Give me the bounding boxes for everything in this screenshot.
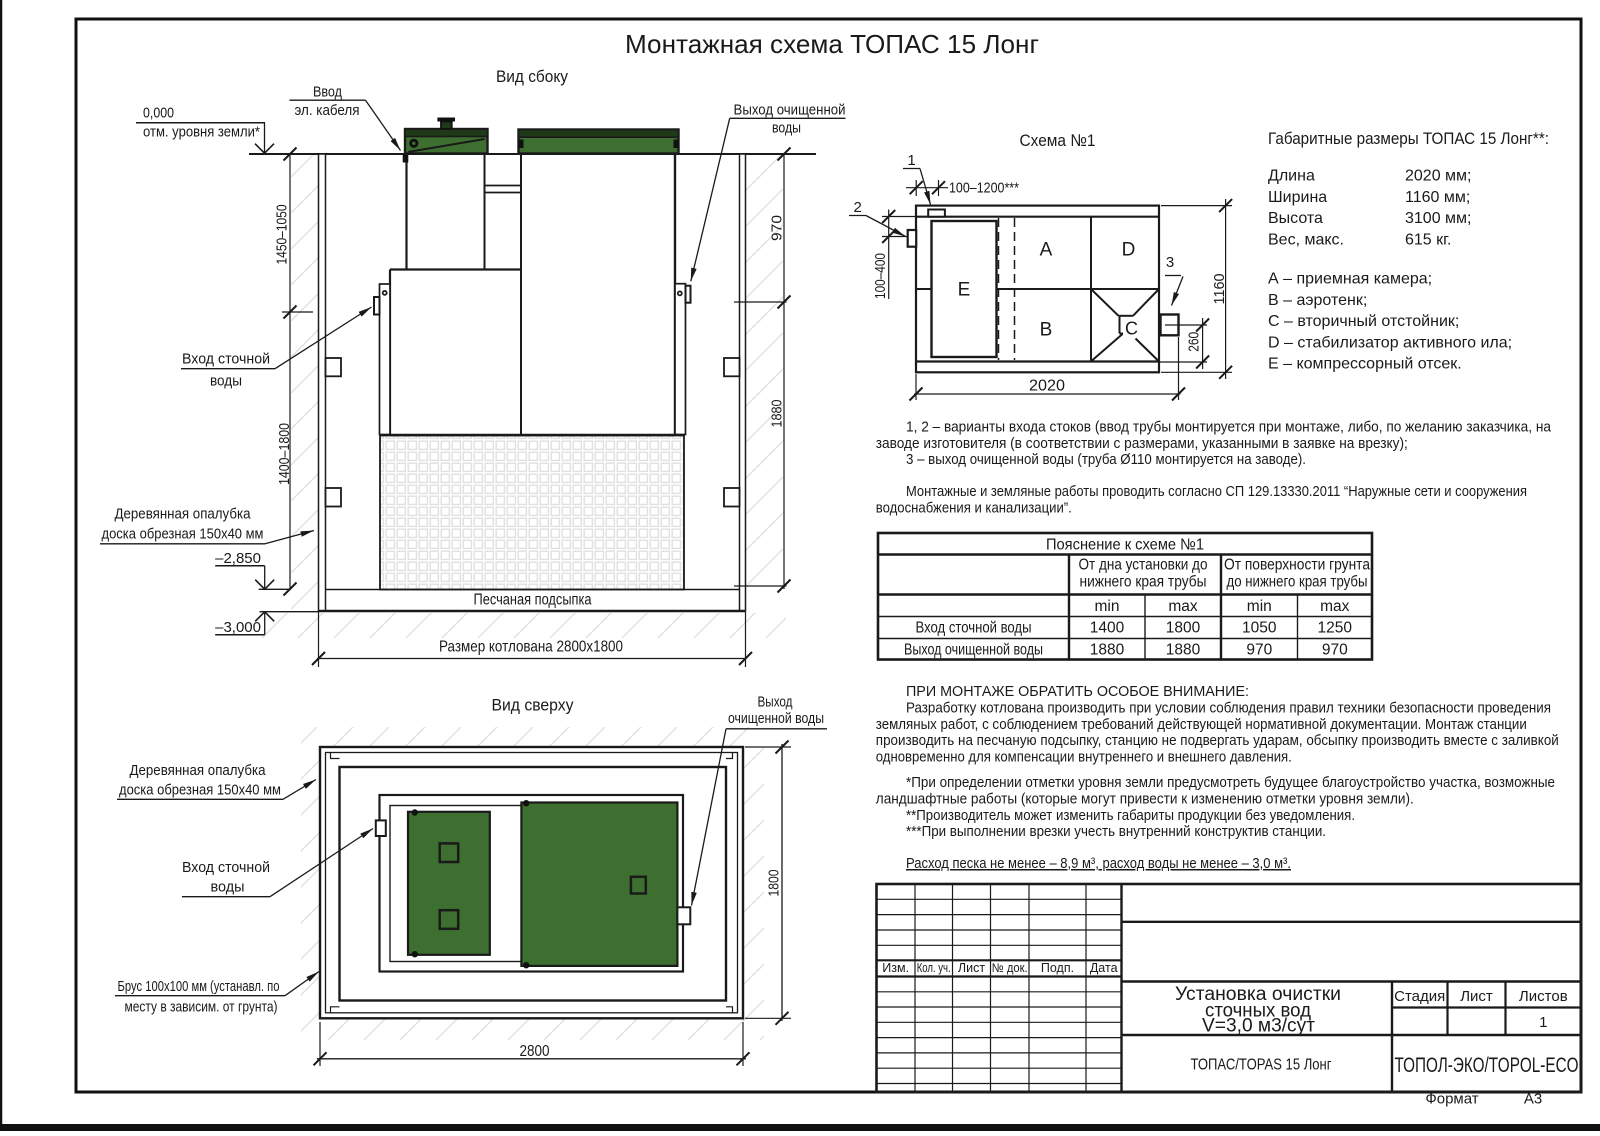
svg-text:970: 970 — [769, 215, 786, 241]
svg-text:ТОПОЛ-ЭКО/TOPOL-ECO: ТОПОЛ-ЭКО/TOPOL-ECO — [1395, 1054, 1579, 1077]
svg-text:A: A — [1040, 240, 1053, 261]
svg-text:одновременно для компенсации в: одновременно для компенсации внутреннего… — [876, 749, 1292, 766]
svg-text:–3,000: –3,000 — [215, 619, 261, 636]
svg-text:доска обрезная 150х40 мм: доска обрезная 150х40 мм — [102, 526, 264, 543]
svg-text:D: D — [1122, 240, 1136, 261]
svg-text:Формат: Формат — [1425, 1091, 1478, 1108]
svg-text:Пояснение к схеме №1: Пояснение к схеме №1 — [1046, 537, 1204, 554]
svg-text:Вход сточной: Вход сточной — [182, 859, 270, 876]
svg-text:отм. уровня земли*: отм. уровня земли* — [143, 124, 260, 141]
svg-text:3100 мм;: 3100 мм; — [1405, 210, 1471, 227]
svg-text:Деревянная опалубка: Деревянная опалубка — [130, 762, 267, 779]
svg-text:1160 мм;: 1160 мм; — [1405, 189, 1470, 206]
svg-text:Вход сточной воды: Вход сточной воды — [916, 620, 1032, 637]
svg-text:№ док.: № док. — [992, 961, 1028, 975]
svg-text:Выход: Выход — [758, 694, 793, 711]
svg-text:А3: А3 — [1524, 1091, 1542, 1108]
svg-text:Вид сбоку: Вид сбоку — [496, 67, 568, 86]
svg-text:1050: 1050 — [1242, 620, 1277, 637]
svg-text:2800: 2800 — [520, 1043, 550, 1060]
svg-text:производить на песчаную подсып: производить на песчаную подсыпку, станци… — [876, 732, 1559, 749]
svg-text:воды: воды — [772, 120, 801, 137]
svg-text:–2,850: –2,850 — [215, 550, 261, 567]
svg-text:воды: воды — [211, 879, 245, 896]
svg-text:земляных работ, с соблюдением: земляных работ, с соблюдением требований… — [876, 716, 1527, 733]
svg-text:Деревянная опалубка: Деревянная опалубка — [115, 506, 252, 523]
svg-text:max: max — [1168, 598, 1198, 615]
svg-text:1160: 1160 — [1211, 274, 1228, 305]
svg-text:1250: 1250 — [1318, 620, 1353, 637]
svg-text:Лист: Лист — [958, 961, 985, 975]
svg-text:Кол. уч.: Кол. уч. — [917, 961, 951, 975]
svg-text:1880: 1880 — [769, 400, 786, 428]
svg-text:Ввод: Ввод — [313, 83, 342, 100]
svg-text:С – вторичный отстойник;: С – вторичный отстойник; — [1268, 313, 1459, 330]
svg-text:Расход песка не менее – 8,9 м³: Расход песка не менее – 8,9 м³, расход в… — [906, 855, 1291, 872]
svg-text:Выход очищенной: Выход очищенной — [734, 102, 846, 119]
svg-text:Стадия: Стадия — [1394, 988, 1445, 1005]
svg-text:1: 1 — [1539, 1014, 1547, 1031]
svg-text:1, 2 – варианты входа стоков: 1, 2 – варианты входа стоков (ввод трубы… — [906, 419, 1552, 436]
svg-text:max: max — [1320, 598, 1350, 615]
svg-text:1800: 1800 — [766, 870, 783, 897]
svg-text:1800: 1800 — [1166, 620, 1201, 637]
svg-text:Дата: Дата — [1090, 961, 1118, 975]
svg-text:E: E — [958, 280, 971, 301]
svg-text:*При определении отметки уровн: *При определении отметки уровня земли пр… — [906, 774, 1555, 791]
svg-text:От дна установки до: От дна установки до — [1079, 557, 1208, 574]
svg-text:C: C — [1125, 319, 1138, 339]
svg-text:1: 1 — [907, 152, 915, 169]
svg-text:Подп.: Подп. — [1041, 961, 1074, 975]
svg-text:Вид сверху: Вид сверху — [492, 696, 574, 715]
svg-text:D – стабилизатор активного ила: D – стабилизатор активного ила; — [1268, 334, 1512, 351]
svg-text:2020 мм;: 2020 мм; — [1405, 168, 1471, 185]
svg-text:3 – выход очищенной воды (труб: 3 – выход очищенной воды (труба Ø110 мон… — [906, 451, 1306, 468]
svg-text:0,000: 0,000 — [143, 105, 174, 122]
svg-text:нижнего края трубы: нижнего края трубы — [1080, 574, 1207, 591]
svg-text:В – аэротенк;: В – аэротенк; — [1268, 292, 1367, 309]
svg-text:2: 2 — [854, 199, 862, 216]
svg-text:1880: 1880 — [1090, 642, 1125, 659]
svg-text:ПРИ МОНТАЖЕ ОБРАТИТЬ ОСОБОЕ ВН: ПРИ МОНТАЖЕ ОБРАТИТЬ ОСОБОЕ ВНИМАНИЕ: — [906, 683, 1249, 700]
svg-text:эл. кабеля: эл. кабеля — [295, 102, 360, 119]
svg-text:615 кг.: 615 кг. — [1405, 231, 1451, 248]
svg-text:Выход очищенной воды: Выход очищенной воды — [904, 642, 1043, 659]
svg-text:V=3,0 м3/сут: V=3,0 м3/сут — [1202, 1016, 1315, 1037]
svg-text:воды: воды — [210, 373, 242, 390]
svg-text:Габаритные размеры ТОПАС 15 Ло: Габаритные размеры ТОПАС 15 Лонг**: — [1268, 129, 1549, 148]
svg-text:B: B — [1040, 320, 1053, 341]
svg-text:Песчаная подсыпка: Песчаная подсыпка — [474, 592, 592, 609]
svg-text:ТОПАС/TOPAS 15 Лонг: ТОПАС/TOPAS 15 Лонг — [1191, 1057, 1332, 1074]
svg-text:очищенной воды: очищенной воды — [728, 710, 824, 727]
svg-text:2020: 2020 — [1029, 378, 1065, 395]
svg-text:min: min — [1095, 598, 1120, 615]
svg-text:100–400: 100–400 — [872, 253, 889, 299]
svg-text:***При выполнении врезки учест: ***При выполнении врезки учесть внутренн… — [906, 823, 1326, 840]
svg-text:1400: 1400 — [1090, 620, 1125, 637]
svg-text:доска обрезная 150х40 мм: доска обрезная 150х40 мм — [119, 782, 281, 799]
svg-text:1450–1050: 1450–1050 — [274, 205, 291, 265]
svg-text:1880: 1880 — [1166, 642, 1201, 659]
svg-text:Разработку котлована производи: Разработку котлована производить при усл… — [906, 699, 1551, 716]
svg-text:Длина: Длина — [1268, 168, 1315, 185]
svg-text:Схема №1: Схема №1 — [1020, 131, 1096, 150]
svg-text:Высота: Высота — [1268, 210, 1323, 227]
svg-text:min: min — [1247, 598, 1272, 615]
svg-text:Вход сточной: Вход сточной — [182, 351, 270, 368]
svg-text:заводе изготовителя (в соответ: заводе изготовителя (в соответствии с ра… — [876, 435, 1408, 452]
svg-text:260: 260 — [1185, 332, 1202, 352]
svg-text:Брус 100х100 мм (устанавл. по: Брус 100х100 мм (устанавл. по — [118, 978, 280, 995]
svg-text:Изм.: Изм. — [882, 961, 909, 975]
svg-text:Размер котлована 2800х1800: Размер котлована 2800х1800 — [439, 639, 623, 656]
svg-text:Лист: Лист — [1460, 988, 1493, 1005]
svg-text:А – приемная камера;: А – приемная камера; — [1268, 271, 1432, 288]
svg-text:до нижнего края трубы: до нижнего края трубы — [1227, 574, 1368, 591]
svg-text:970: 970 — [1246, 642, 1272, 659]
svg-text:Монтажные и земляные работы пр: Монтажные и земляные работы проводить со… — [906, 483, 1527, 500]
svg-text:100–1200***: 100–1200*** — [949, 180, 1019, 197]
svg-text:Монтажная схема ТОПАС 15 Лонг: Монтажная схема ТОПАС 15 Лонг — [625, 29, 1039, 59]
svg-text:месту в зависим. от грунта): месту в зависим. от грунта) — [125, 999, 278, 1016]
svg-text:ландшафтные работы (которые мо: ландшафтные работы (которые могут привес… — [876, 790, 1414, 807]
svg-text:**Производитель может изменить: **Производитель может изменить габариты … — [906, 807, 1355, 824]
svg-text:Е – компрессорный отсек.: Е – компрессорный отсек. — [1268, 356, 1462, 373]
svg-text:Листов: Листов — [1519, 988, 1568, 1005]
svg-text:3: 3 — [1166, 254, 1174, 271]
svg-text:От поверхности грунта: От поверхности грунта — [1224, 557, 1370, 574]
svg-text:Ширина: Ширина — [1268, 189, 1327, 206]
svg-text:1400–1800: 1400–1800 — [276, 423, 293, 485]
svg-text:водоснабжения и канализации”.: водоснабжения и канализации”. — [876, 499, 1072, 516]
svg-text:970: 970 — [1322, 642, 1348, 659]
svg-text:Вес, макс.: Вес, макс. — [1268, 231, 1344, 248]
